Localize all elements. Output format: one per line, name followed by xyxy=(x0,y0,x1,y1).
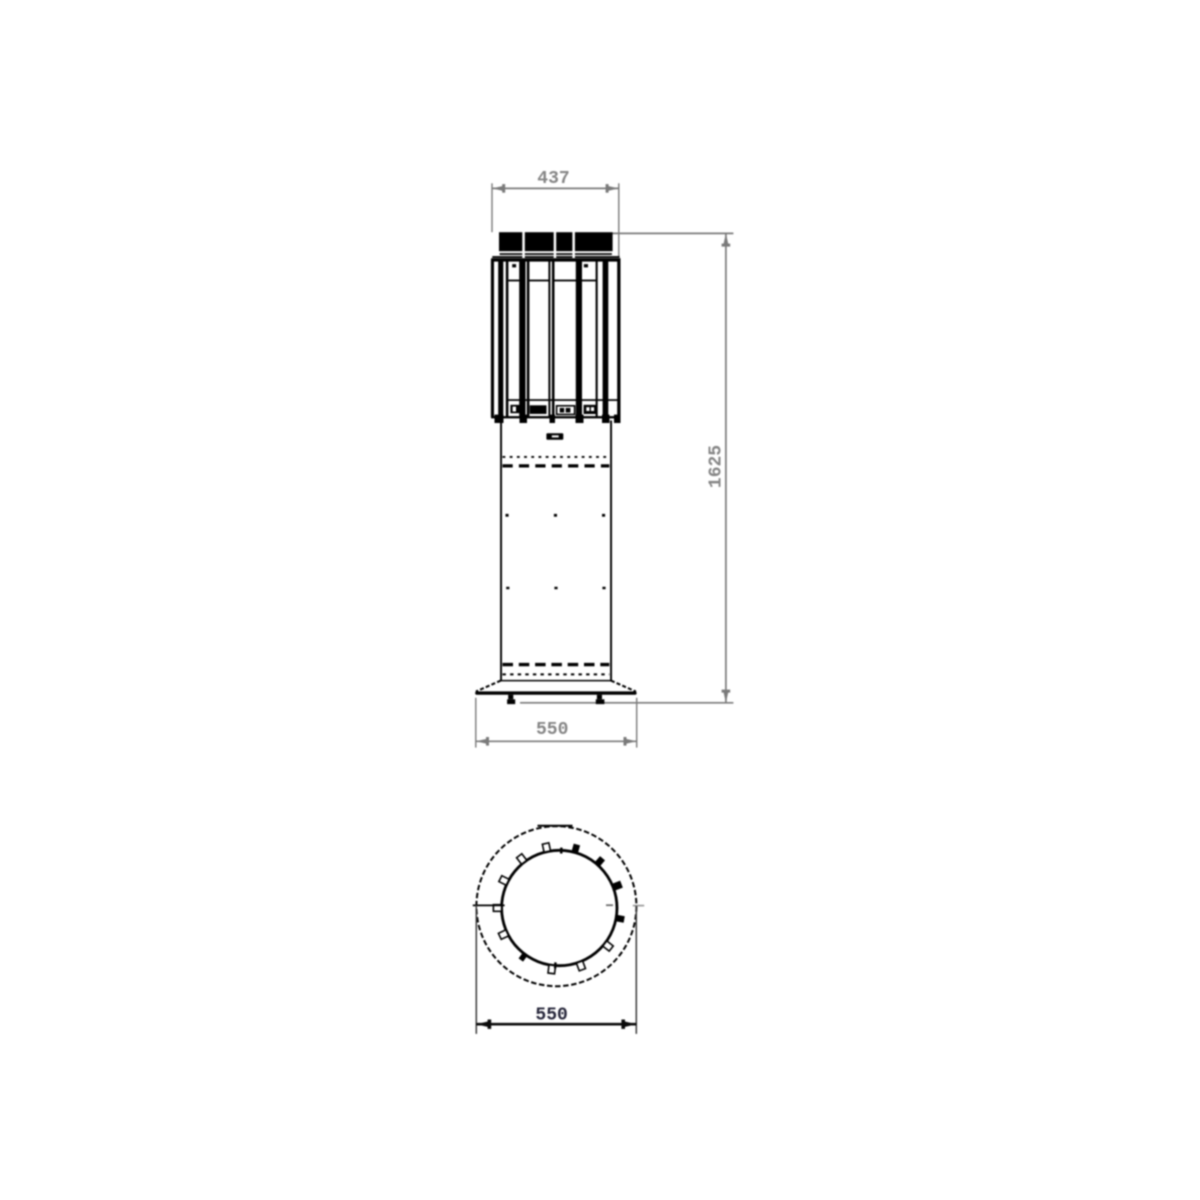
svg-text:437: 437 xyxy=(537,169,569,189)
svg-text:550: 550 xyxy=(536,720,568,740)
svg-text:550: 550 xyxy=(535,1006,567,1026)
svg-text:1625: 1625 xyxy=(707,445,727,488)
